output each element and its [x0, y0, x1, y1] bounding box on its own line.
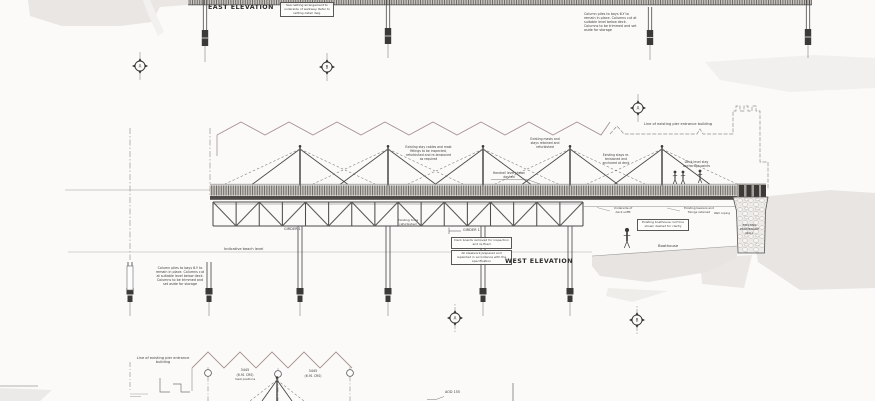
column-shoe	[298, 296, 303, 303]
stay-cable	[252, 149, 300, 185]
east-pile-note: Column piles to bays 6-Y to remain in pl…	[584, 12, 640, 33]
deck-balustrade	[210, 185, 737, 195]
truss-diagonal	[514, 202, 537, 226]
survey-target-tick	[145, 64, 148, 68]
stay-note-3: Existing stays re-tensioned and anchored…	[601, 154, 631, 166]
leader-line	[597, 208, 610, 212]
survey-target-tick	[636, 100, 640, 103]
shading-beach-streak	[606, 288, 668, 302]
person-figure	[625, 228, 629, 232]
girder-label-2: GIRDER 1	[463, 228, 480, 232]
grid-bubble-icon	[205, 370, 212, 377]
column-shoe	[297, 288, 304, 295]
survey-target-tick	[643, 106, 646, 110]
stay-cable-dashed	[224, 149, 300, 185]
survey-target-tick	[635, 312, 639, 315]
person-figure	[683, 180, 685, 185]
handrail-label: Handrail level shown dashed	[491, 172, 527, 180]
mast-finial	[299, 145, 302, 148]
person-figure	[674, 171, 677, 174]
column-shoe	[385, 288, 392, 295]
grid-bubble-icon	[347, 370, 354, 377]
shading-right	[752, 190, 875, 290]
truss-diagonal	[421, 202, 444, 226]
building-step-outline	[173, 384, 190, 392]
deck-end-block	[747, 185, 752, 198]
column-shoe	[128, 296, 133, 303]
grid-marker-letter: A	[139, 64, 142, 69]
column-shoe	[207, 296, 212, 303]
truss-diagonal	[467, 202, 490, 226]
survey-target-tick	[642, 318, 645, 322]
column-shoe	[206, 288, 213, 295]
west-elevation-title: WEST ELEVATION	[505, 258, 573, 266]
elevation-linework: ABAAB	[0, 0, 875, 401]
leader-line	[667, 208, 680, 211]
person-figure	[675, 180, 677, 185]
deck-end-block	[761, 185, 766, 198]
stay-cable	[340, 149, 388, 185]
survey-target-tick	[629, 318, 632, 322]
dimension-1-note: mast positions	[231, 378, 259, 381]
column-shoe	[567, 288, 574, 295]
person-figure	[682, 171, 685, 174]
grid-marker-letter: A	[637, 106, 640, 111]
mast-finial	[387, 145, 390, 148]
column-shoe	[386, 296, 391, 303]
column-shoe	[568, 296, 573, 303]
person-figure	[624, 241, 627, 248]
beach-level-label: Indicative beach level	[224, 247, 263, 251]
grid-bubble-icon	[275, 371, 282, 378]
person-figure	[700, 179, 702, 184]
stay-note-1: Existing stay cables and mast fittings t…	[405, 146, 452, 161]
pile-tag	[127, 266, 133, 290]
mast-finial	[661, 145, 664, 148]
deck-end-block	[739, 185, 744, 198]
grid-marker-letter: B	[326, 65, 329, 70]
grid-marker-letter: A	[454, 316, 457, 321]
girder-label-1: GIRDER 1	[284, 227, 301, 231]
survey-target-tick	[447, 316, 450, 320]
stay-cable	[300, 149, 348, 185]
person-figure	[673, 180, 675, 185]
survey-target-tick	[636, 113, 640, 116]
survey-target-tick	[325, 72, 329, 75]
coping-label: Wall coping	[712, 212, 732, 215]
level-leader	[427, 397, 444, 400]
column-shoe	[481, 296, 486, 303]
east-elevation-title: EAST ELEVATION	[208, 4, 274, 12]
survey-target-tick	[325, 59, 329, 62]
truss-diagonal	[236, 202, 259, 226]
truss-diagonal	[282, 202, 305, 226]
truss-diagonal	[306, 202, 329, 226]
boathouse-note-box: Existing boathouse roof line shown dashe…	[637, 219, 689, 231]
deck-band	[210, 196, 737, 200]
survey-target-tick	[138, 71, 142, 74]
building-line-label-bottom: Line of existing pier entrance building	[136, 356, 190, 365]
survey-target-tick	[453, 323, 457, 326]
truss-note: Existing truss refurbished	[394, 219, 422, 227]
stay-cable	[522, 149, 570, 185]
person-figure	[698, 179, 700, 184]
truss-diagonal	[444, 202, 467, 226]
survey-target-tick	[138, 58, 142, 61]
stay-cable-dashed	[277, 380, 304, 401]
person-figure	[699, 170, 702, 173]
stay-note-2: Existing masts and stays retained and re…	[530, 138, 560, 150]
truss-diagonal	[352, 202, 375, 226]
survey-target-tick	[460, 316, 463, 320]
roofline-zigzag-lower	[192, 352, 352, 368]
dimension-2-value: 3445	[299, 369, 327, 373]
dimension-1-value: 3445	[231, 368, 259, 372]
dimension-2-unit: (6.91 CRS)	[299, 374, 327, 378]
survey-target-tick	[630, 106, 633, 110]
stay-cable-dashed	[250, 380, 277, 401]
level-label: AOD 155	[445, 390, 460, 394]
pier-building-outline	[610, 106, 768, 190]
survey-target-tick	[635, 325, 639, 328]
truss-diagonal	[329, 202, 352, 226]
column-shoe	[480, 288, 487, 295]
stay-note-4: Deck level stay anchorage points	[680, 161, 713, 169]
shading-top-left	[28, 0, 205, 26]
person-figure	[681, 180, 683, 185]
truss-diagonal	[537, 202, 560, 226]
truss-diagonal	[560, 202, 583, 226]
east-note-box: Sea netting arrangement to underside of …	[280, 2, 334, 17]
survey-target-tick	[319, 65, 322, 69]
west-note-box-1: Deck boards removed for inspection and r…	[451, 237, 512, 249]
truss-diagonal	[491, 202, 514, 226]
building-step-outline	[160, 378, 170, 392]
drawing-sheet: ABAAB EAST ELEVATION Sea netting arrange…	[0, 0, 875, 401]
grid-marker-letter: B	[636, 318, 639, 323]
roofline-zigzag	[217, 122, 610, 135]
promenade-wall-label: EXISTING PROMENADE WALL	[736, 224, 763, 235]
survey-target-tick	[332, 65, 335, 69]
stay-cable	[277, 380, 292, 401]
mast-finial-lower	[276, 376, 279, 379]
mast-finial	[482, 145, 485, 148]
soffit-note: Underside of deck soffit	[610, 207, 636, 214]
survey-target-tick	[132, 64, 135, 68]
shading-bottom-left	[0, 388, 52, 401]
person-figure	[627, 241, 630, 248]
west-pile-note: Column piles to bays 6-Y to remain in pl…	[154, 266, 206, 287]
building-line-label-mid: Line of existing pier entrance building	[643, 122, 713, 126]
mast-finial	[569, 145, 572, 148]
stay-cable	[262, 380, 277, 401]
boathouse-label: Boathouse	[658, 244, 678, 249]
west-note-box-2: All steelwork prepared and repainted in …	[451, 250, 512, 265]
shading-top-right	[705, 55, 875, 92]
survey-target-tick	[453, 310, 457, 313]
truss-diagonal	[213, 202, 236, 226]
deck-end-block	[754, 185, 759, 198]
truss-diagonal	[259, 202, 282, 226]
